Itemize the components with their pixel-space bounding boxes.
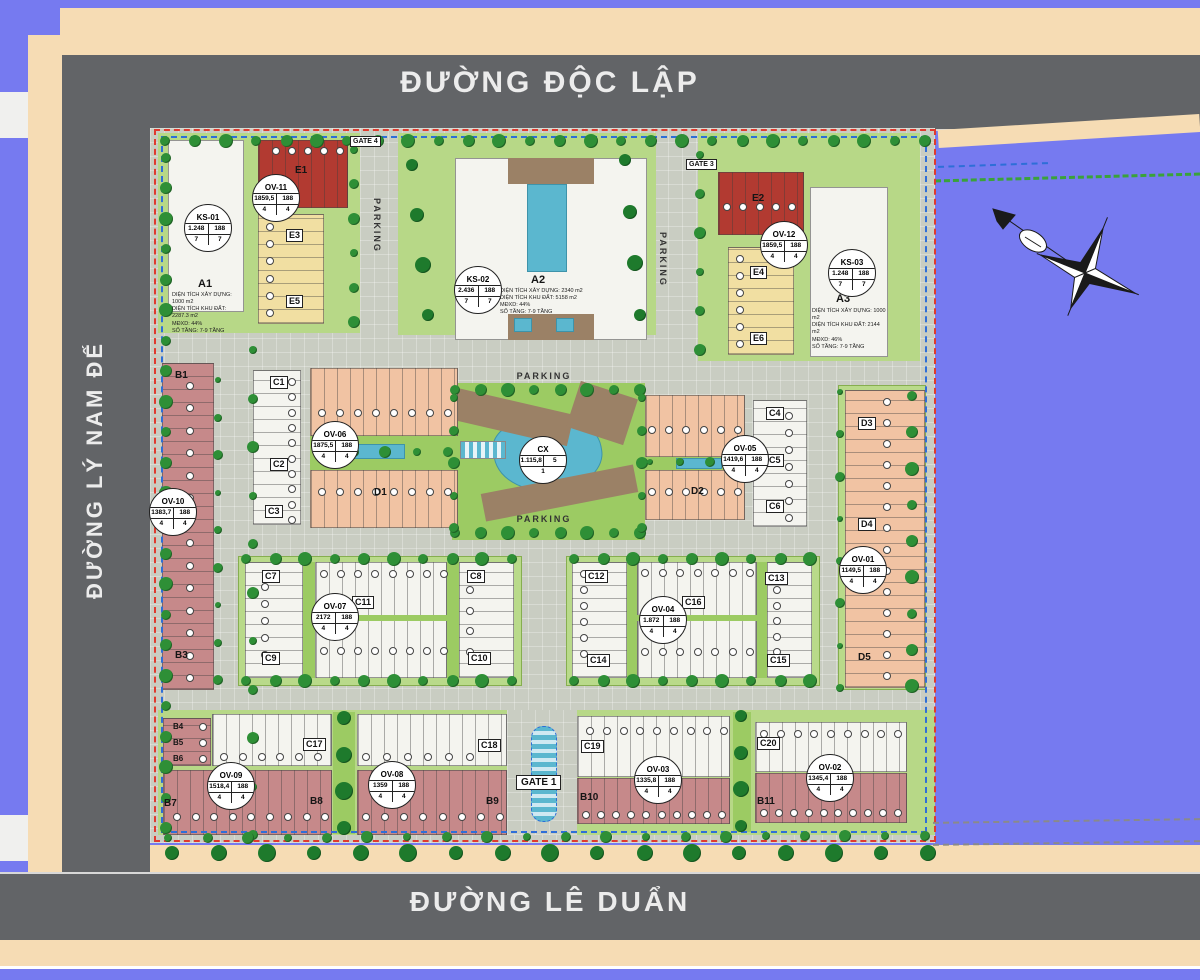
tree-icon [449,523,459,533]
tree-icon [336,747,352,763]
lot-number-circle [408,409,416,417]
badge-KS-01: KS-011.24818877 [184,204,232,252]
lot-number-circle [736,272,744,280]
lot-number-circle [580,602,588,610]
label-b3: B3 [175,650,188,662]
lot-number-circle [220,753,228,761]
badge-title: OV-05 [722,443,768,455]
bottom-sidewalk-lower [0,940,1200,968]
lot-number-circle [406,570,414,578]
street-name-left: ĐƯỜNG LÝ NAM ĐẾ [82,290,126,650]
tree-icon [298,552,312,566]
lot-number-circle [773,602,781,610]
tree-icon [298,674,312,688]
tree-icon [584,134,598,148]
badge-title: KS-01 [185,212,231,224]
lot-number-circle [820,809,828,817]
tree-icon [746,554,756,564]
tree-icon [463,135,475,147]
badge-title: OV-07 [312,601,358,613]
info-line: MĐXD: 46% [812,337,886,344]
tree-icon [337,821,351,835]
badge-floors: 1 [520,467,566,477]
lot-number-circle [775,809,783,817]
badge-OV-09: OV-091518,418844 [207,762,255,810]
tree-icon [348,213,360,225]
block-d1-lower [310,470,458,528]
tree-icon [837,389,843,395]
tree-icon [686,675,698,687]
badge-floors: 44 [253,205,299,215]
lot-number-circle [406,647,414,655]
tree-icon [337,711,351,725]
lot-number-circle [284,813,292,821]
lot-number-circle [288,424,296,432]
tree-icon [501,383,515,397]
tree-icon [694,227,706,239]
label-e5: E5 [286,295,303,308]
badge-values: 1.872188 [640,616,686,627]
badge-OV-12: OV-121859,518844 [760,221,808,269]
lot-number-circle [288,147,296,155]
tree-icon [270,675,282,687]
tree-icon [735,820,747,832]
tree-icon [616,136,626,146]
tree-icon [837,516,843,522]
tree-icon [695,306,705,316]
badge-values: 1.248188 [829,269,875,280]
label-e2: E2 [752,193,764,205]
lot-number-circle [736,323,744,331]
lot-number-circle [580,618,588,626]
lot-number-circle [239,753,247,761]
tree-icon [449,426,459,436]
lot-number-circle [676,569,684,577]
badge-values: 1518,4188 [208,782,254,793]
label-c15: C15 [767,654,790,667]
tree-icon [658,676,668,686]
lot-number-circle [186,472,194,480]
tree-icon [696,151,704,159]
lot-number-circle [354,488,362,496]
tree-icon [905,679,919,693]
info-line: DIỆN TÍCH XÂY DỰNG: 1000 m2 [172,292,242,306]
lot-number-circle [883,419,891,427]
tree-icon [638,492,646,500]
tree-icon [248,394,258,404]
label-c7: C7 [262,570,280,583]
lot-number-circle [383,753,391,761]
lot-number-circle [785,480,793,488]
lot-number-circle [883,609,891,617]
badge-OV-02: OV-021345,418844 [806,754,854,802]
lot-number-circle [186,562,194,570]
badge-OV-06: OV-061875,518844 [311,421,359,469]
lot-number-circle [408,488,416,496]
lot-number-circle [390,488,398,496]
green-divider [627,562,637,678]
badge-OV-07: OV-07217218844 [311,593,359,641]
lot-number-circle [288,470,296,478]
badge-title: OV-04 [640,604,686,616]
tree-icon [598,553,610,565]
info-line: DIỆN TÍCH KHU ĐẤT: 2144 m2 [812,322,886,336]
tree-icon [626,552,640,566]
lot-number-circle [844,730,852,738]
badge-title: OV-06 [312,429,358,441]
tree-icon [775,675,787,687]
tree-icon [160,274,172,286]
gate1-label: GATE 1 [516,775,561,790]
tree-icon [495,845,511,861]
tree-icon [213,675,223,685]
tree-icon [165,846,179,860]
tree-icon [214,414,222,422]
label-d4: D4 [858,518,876,531]
lot-number-circle [582,811,590,819]
lot-number-circle [688,811,696,819]
tree-icon [350,146,358,154]
lot-number-circle [658,811,666,819]
tree-icon [310,134,324,148]
tree-icon [203,833,213,843]
tree-icon [906,535,918,547]
lot-number-circle [321,813,329,821]
site-plan-map: ĐƯỜNG ĐỘC LẬP ĐƯỜNG LÝ NAM ĐẾ ĐƯỜNG LÊ D… [0,0,1200,980]
lot-number-circle [729,648,737,656]
building-info-a1: DIỆN TÍCH XÂY DỰNG: 1000 m2DIỆN TÍCH KHU… [172,292,242,335]
lot-number-circle [266,275,274,283]
lot-number-circle [717,426,725,434]
label-b5: B5 [173,737,183,749]
lot-number-circle [444,488,452,496]
lot-number-circle [466,753,474,761]
lot-number-circle [883,651,891,659]
tree-icon [281,135,293,147]
lot-number-circle [318,409,326,417]
lot-number-circle [466,607,474,615]
lot-number-circle [496,813,504,821]
tree-icon [219,134,233,148]
lot-number-circle [773,586,781,594]
tree-icon [766,134,780,148]
lot-number-circle [785,463,793,471]
tree-icon [449,846,463,860]
lot-number-circle [641,648,649,656]
tree-icon [735,710,747,722]
a2-pool [527,184,567,272]
lot-number-circle [603,727,611,735]
lot-number-circle [676,648,684,656]
tree-icon [387,674,401,688]
lot-number-circle [318,488,326,496]
label-c1: C1 [270,376,288,389]
badge-title: OV-09 [208,770,254,782]
tree-icon [609,385,619,395]
lot-number-circle [440,647,448,655]
tree-icon [159,395,173,409]
badge-OV-11: OV-111859,518844 [252,174,300,222]
tree-icon [598,675,610,687]
lot-number-circle [883,672,891,680]
tree-icon [705,457,715,467]
green-divider [733,712,751,832]
tree-icon [746,676,756,686]
tree-icon [803,552,817,566]
tree-icon [448,457,460,469]
gate3-label: GATE 3 [686,159,717,170]
lot-number-circle [266,292,274,300]
tree-icon [322,833,332,843]
info-line: SỐ TẦNG: 7-9 TẦNG [812,344,886,351]
tree-icon [349,283,359,293]
lot-number-circle [266,813,274,821]
lot-number-circle [444,409,452,417]
badge-title: KS-03 [829,257,875,269]
tree-icon [213,563,223,573]
label-b4: B4 [173,721,183,733]
lot-number-circle [389,570,397,578]
lot-number-circle [718,811,726,819]
badge-OV-10: OV-101383,718844 [149,488,197,536]
lot-number-circle [199,739,207,747]
gate1-median [531,726,557,822]
lot-number-circle [673,811,681,819]
lot-number-circle [320,647,328,655]
badge-values: 1335,8188 [635,776,681,787]
badge-OV-05: OV-051419,618844 [721,435,769,483]
tree-icon [905,462,919,476]
label-e4: E4 [750,266,767,279]
tree-icon [434,136,444,146]
info-line: SỐ TẦNG: 7-9 TẦNG [500,309,592,316]
info-line: DIỆN TÍCH KHU ĐẤT: 5158 m2 [500,295,592,302]
label-c14: C14 [587,654,610,667]
label-c9: C9 [262,652,280,665]
info-line: SỐ TẦNG: 7-9 TẦNG [172,328,242,335]
tree-icon [835,472,845,482]
badge-values: 1345,4188 [807,774,853,785]
lot-number-circle [266,223,274,231]
badge-values: 1419,6188 [722,455,768,466]
lot-number-circle [336,488,344,496]
lot-number-circle [736,255,744,263]
offsite-building [0,815,28,861]
tree-icon [907,609,917,619]
label-c18: C18 [478,739,501,752]
lot-number-circle [426,488,434,496]
tree-icon [623,205,637,219]
tree-icon [160,822,172,834]
lot-number-circle [354,409,362,417]
tree-icon [214,639,222,647]
badge-title: OV-08 [369,769,415,781]
tree-icon [249,346,257,354]
lot-number-circle [186,382,194,390]
tree-icon [732,846,746,860]
tree-icon [638,394,646,402]
lot-number-circle [261,634,269,642]
lot-number-circle [466,586,474,594]
badge-title: KS-02 [455,274,501,286]
tree-icon [507,676,517,686]
street-name-bottom: ĐƯỜNG LÊ DUẨN [300,886,800,918]
badge-values: 1859,5188 [253,194,299,205]
tree-icon [249,492,257,500]
badge-OV-04: OV-041.87218844 [639,596,687,644]
tree-icon [247,732,259,744]
lot-number-circle [426,409,434,417]
green-divider [447,562,459,678]
lot-number-circle [659,648,667,656]
tree-icon [694,344,706,356]
label-c2: C2 [270,458,288,471]
tree-icon [609,528,619,538]
label-e6: E6 [750,332,767,345]
badge-floors: 77 [185,235,231,245]
tree-icon [248,685,258,695]
lot-number-circle [785,446,793,454]
badge-floors: 44 [208,793,254,803]
tree-icon [481,831,493,843]
label-d1: D1 [374,487,387,499]
lot-number-circle [694,648,702,656]
badge-title: OV-02 [807,762,853,774]
lot-number-circle [390,409,398,417]
lot-number-circle [192,813,200,821]
badge-values: 1149,5188 [840,566,886,577]
lot-number-circle [894,730,902,738]
lot-number-circle [746,648,754,656]
lot-number-circle [720,727,728,735]
badge-floors: 77 [829,280,875,290]
tree-icon [828,135,840,147]
lot-number-circle [288,378,296,386]
lot-number-circle [694,569,702,577]
gray-dashed-line [933,818,1200,824]
tree-icon [213,450,223,460]
lot-number-circle [861,730,869,738]
tree-icon [242,832,254,844]
tree-icon [387,552,401,566]
lot-number-circle [883,546,891,554]
badge-values: 2172188 [312,613,358,624]
lot-number-circle [336,147,344,155]
tree-icon [159,212,173,226]
tree-icon [642,833,650,841]
tree-icon [686,553,698,565]
tree-icon [775,553,787,565]
tree-icon [450,394,458,402]
blue-dashed-line [938,162,1048,168]
tree-icon [734,746,748,760]
badge-KS-02: KS-022.43618877 [454,266,502,314]
tree-icon [920,831,930,841]
top-sidewalk [60,8,1200,55]
tree-icon [241,554,251,564]
street-name-top: ĐƯỜNG ĐỘC LẬP [300,66,800,100]
badge-KS-03: KS-031.24818877 [828,249,876,297]
lot-number-circle [788,203,796,211]
lot-number-circle [711,648,719,656]
label-b6: B6 [173,753,183,765]
badge-floors: 44 [640,627,686,637]
tree-icon [836,684,844,692]
label-c3: C3 [265,505,283,518]
lot-number-circle [261,600,269,608]
tree-icon [525,136,535,146]
lot-number-circle [734,426,742,434]
lot-number-circle [773,617,781,625]
lot-number-circle [440,570,448,578]
badge-values: 1859,5188 [761,241,807,252]
left-sidewalk [28,35,62,872]
tree-icon [215,377,221,383]
lot-number-circle [641,569,649,577]
badge-floors: 44 [369,792,415,802]
label-b9: B9 [486,796,499,808]
lot-number-circle [272,147,280,155]
lot-number-circle [580,586,588,594]
tree-icon [906,644,918,656]
label-d5: D5 [858,652,871,664]
lot-number-circle [458,813,466,821]
green-dashed-line [935,173,1200,183]
tree-icon [569,676,579,686]
tree-icon [720,831,732,843]
tree-icon [874,846,888,860]
green-divider [333,712,355,834]
tree-icon [214,526,222,534]
parking-label-s: PARKING [502,514,586,524]
curb-line [0,966,1200,969]
building-info-a3: DIỆN TÍCH XÂY DỰNG: 1000 m2DIỆN TÍCH KHU… [812,308,886,351]
offsite-building [0,92,28,138]
tree-icon [160,548,172,560]
tree-icon [161,610,171,620]
lot-number-circle [734,488,742,496]
tree-icon [600,831,612,843]
lot-number-circle [477,813,485,821]
tree-icon [681,832,691,842]
label-a1: A1 [198,278,212,290]
tree-icon [247,441,259,453]
badge-title: OV-11 [253,182,299,194]
lot-number-circle [389,647,397,655]
badge-floors: 44 [807,785,853,795]
tree-icon [307,846,321,860]
a2-small-pool [514,318,532,332]
lot-number-circle [210,813,218,821]
tree-icon [907,500,917,510]
tree-icon [523,833,531,841]
badge-CX: CX1.115,851 [519,436,567,484]
tree-icon [907,391,917,401]
tree-icon [920,845,936,861]
tree-icon [413,448,421,456]
lot-number-circle [687,727,695,735]
tree-icon [353,845,369,861]
lot-number-circle [439,813,447,821]
lot-number-circle [648,426,656,434]
tree-icon [159,669,173,683]
label-c19: C19 [581,740,604,753]
lot-number-circle [760,809,768,817]
lot-number-circle [320,147,328,155]
lot-number-circle [258,753,266,761]
tree-icon [507,554,517,564]
a2-terrace-top [508,158,594,184]
